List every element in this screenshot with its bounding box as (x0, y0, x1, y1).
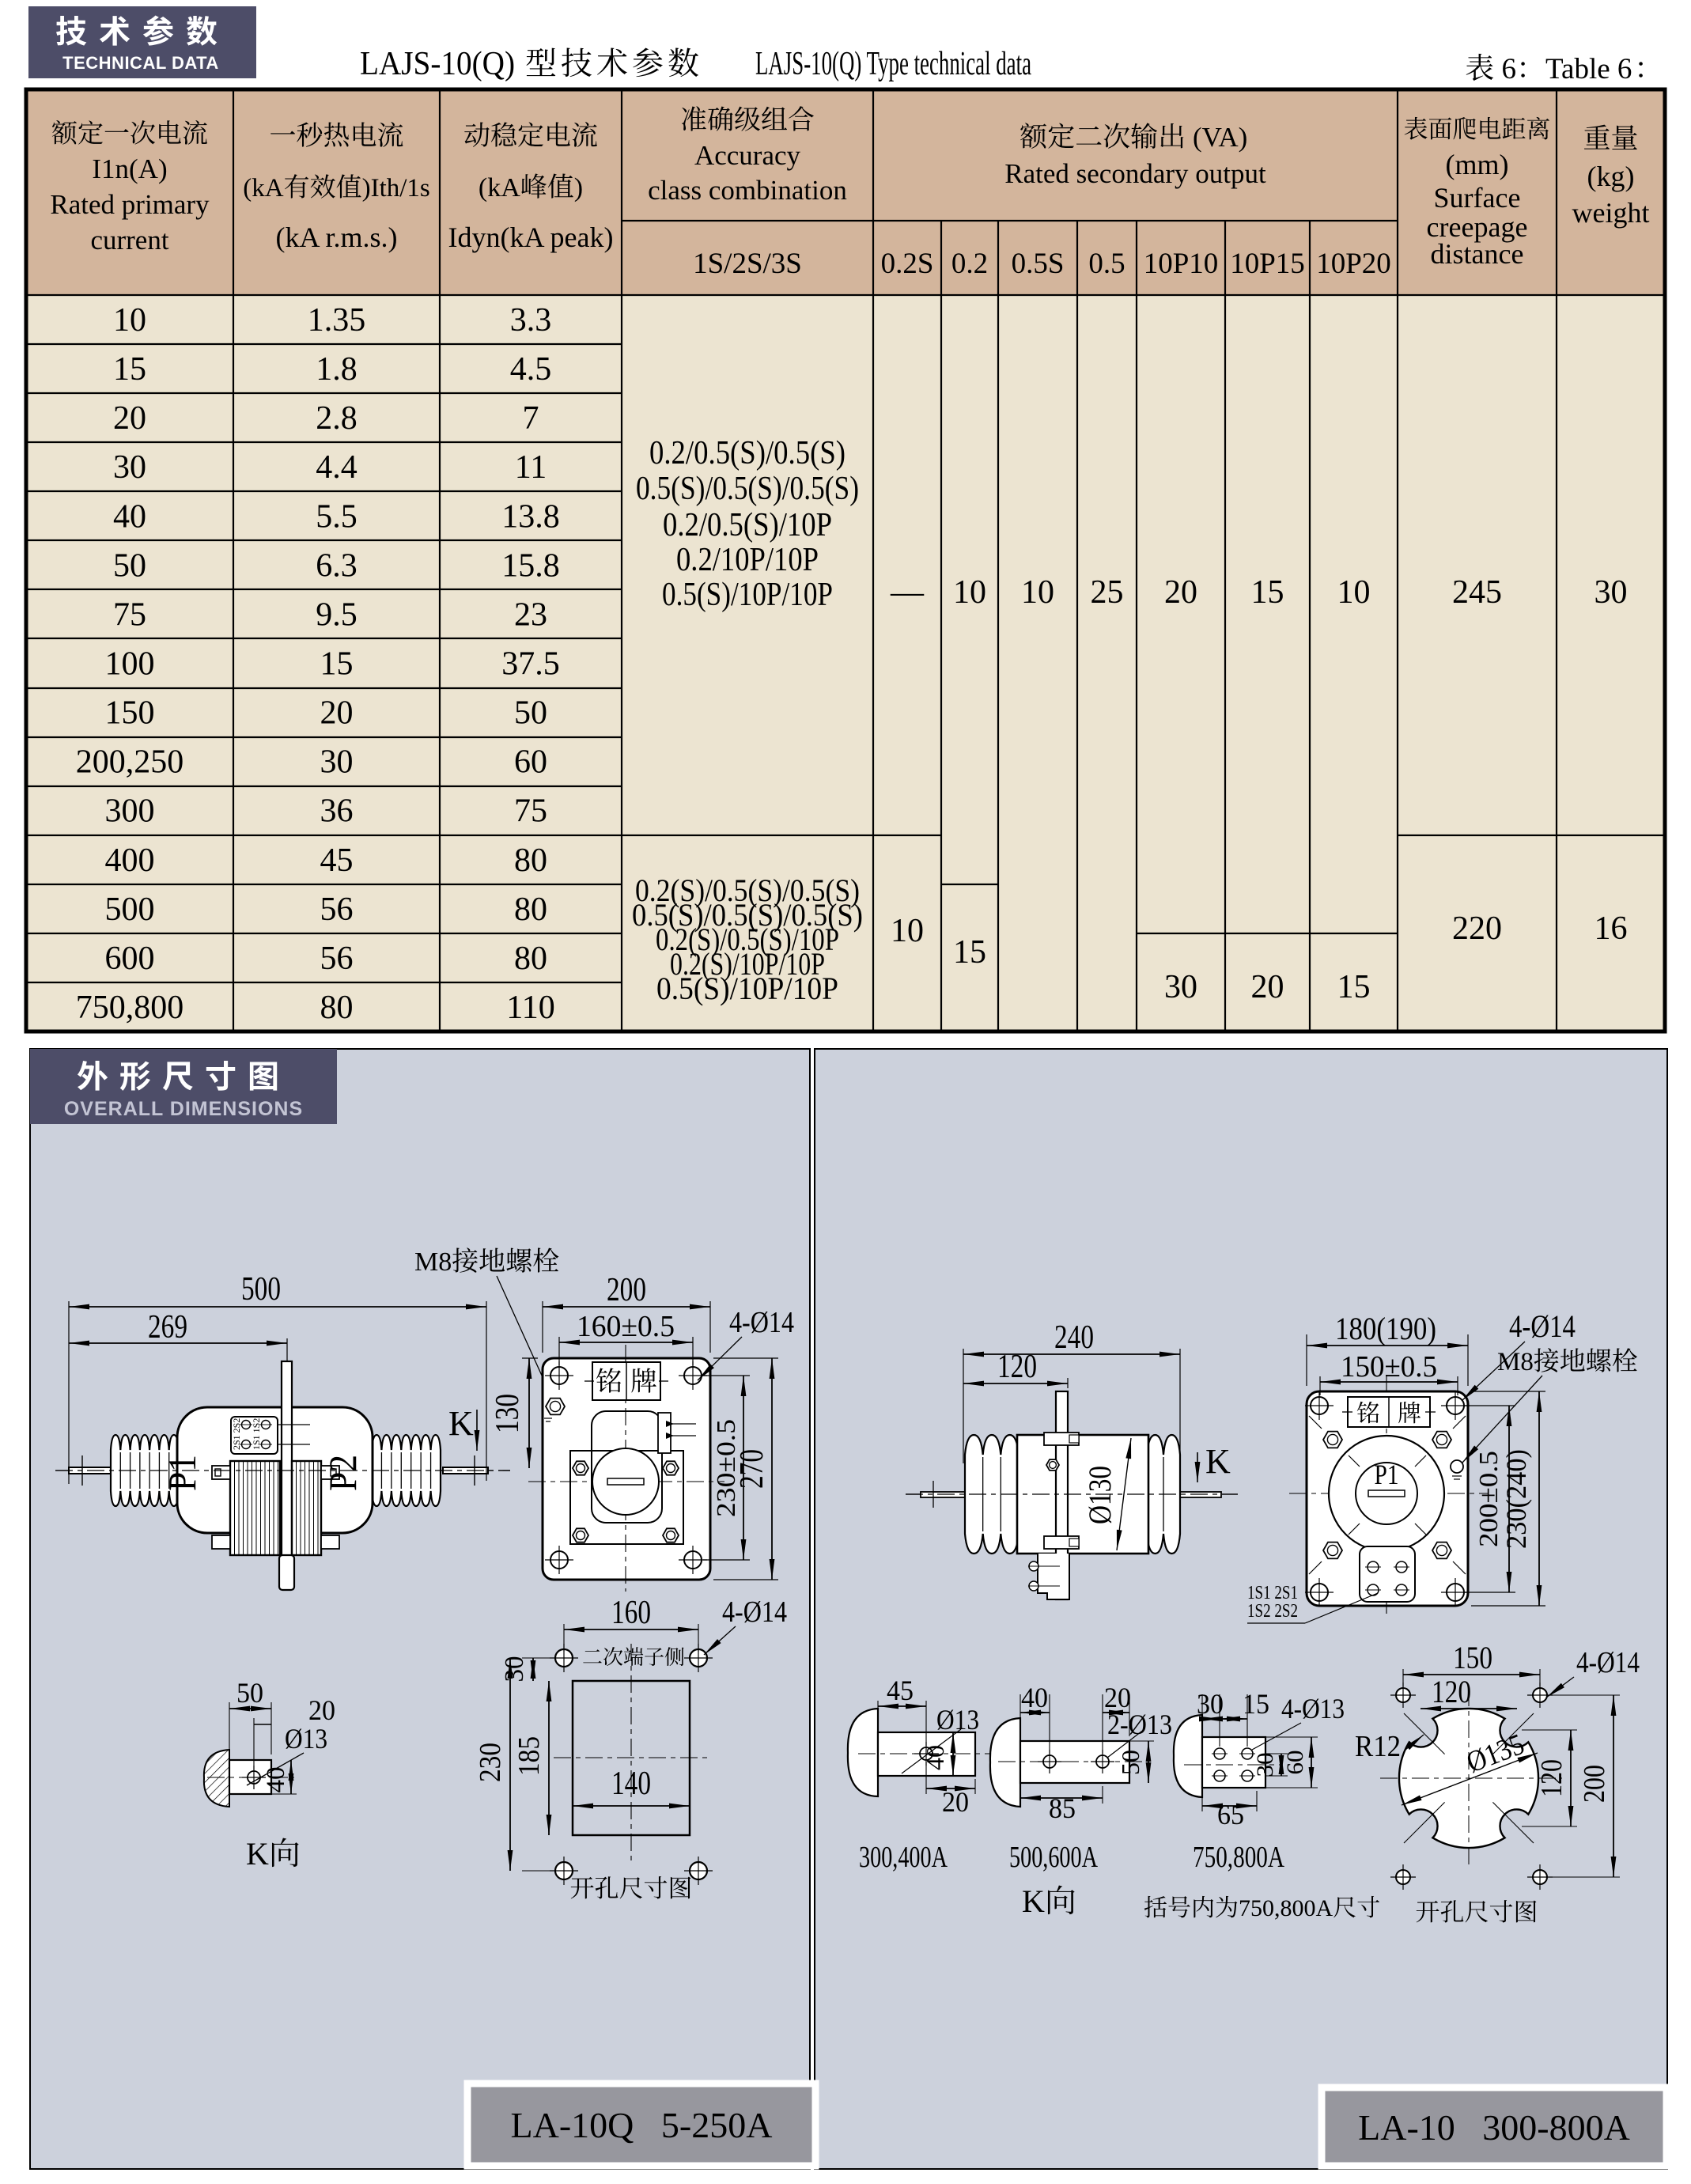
svg-text:500: 500 (105, 891, 155, 928)
svg-text:1S1 1S2: 1S1 1S2 (251, 1418, 262, 1450)
svg-text:0.5(S)/0.5(S)/0.5(S): 0.5(S)/0.5(S)/0.5(S) (636, 471, 859, 507)
svg-text:6: 6 (1494, 53, 1516, 85)
svg-text:0.2S: 0.2S (881, 248, 934, 280)
svg-text:80: 80 (514, 941, 547, 977)
svg-text:500,600A: 500,600A (1009, 1841, 1098, 1874)
svg-text:37.5: 37.5 (501, 646, 560, 683)
svg-text:0.2/0.5(S)/10P: 0.2/0.5(S)/10P (663, 507, 832, 543)
svg-text:0.2/0.5(S)/0.5(S): 0.2/0.5(S)/0.5(S) (649, 435, 845, 471)
svg-text:10: 10 (113, 302, 146, 339)
svg-text:0.5: 0.5 (1088, 248, 1125, 280)
svg-text:): ) (574, 173, 583, 203)
svg-text:300,400A: 300,400A (859, 1841, 948, 1874)
svg-text:7: 7 (523, 400, 539, 437)
svg-text:1.8: 1.8 (316, 351, 357, 388)
svg-text:10P20: 10P20 (1316, 248, 1391, 280)
svg-text:23: 23 (514, 596, 547, 633)
svg-text:56: 56 (320, 891, 354, 928)
svg-text:(kA: (kA (243, 174, 283, 203)
svg-text:15: 15 (113, 351, 146, 388)
svg-text:I1n(A): I1n(A) (92, 153, 167, 184)
svg-text:1S2 2S2: 1S2 2S2 (1247, 1601, 1298, 1622)
svg-text:M8: M8 (1497, 1348, 1534, 1376)
svg-text:R12: R12 (1355, 1730, 1401, 1763)
svg-text:80: 80 (320, 990, 354, 1026)
svg-text:Accuracy: Accuracy (694, 140, 801, 171)
svg-text:230: 230 (474, 1743, 507, 1782)
svg-text:245: 245 (1452, 574, 1502, 611)
svg-text:45: 45 (320, 842, 354, 879)
svg-text:—: — (890, 574, 925, 611)
svg-text:65: 65 (1217, 1799, 1244, 1830)
svg-text:current: current (90, 225, 168, 255)
svg-text:Surface: Surface (1434, 182, 1521, 214)
svg-text:0.5S: 0.5S (1012, 248, 1065, 280)
svg-text:750,800A: 750,800A (1239, 1895, 1334, 1921)
svg-text:9.5: 9.5 (316, 596, 357, 633)
svg-text:2S1 2S2: 2S1 2S2 (231, 1418, 242, 1450)
svg-text:Ø13: Ø13 (285, 1723, 327, 1754)
svg-text:400: 400 (105, 842, 155, 879)
svg-text:TECHNICAL DATA: TECHNICAL DATA (62, 53, 219, 73)
svg-text:10: 10 (891, 913, 924, 949)
svg-text:50: 50 (113, 547, 146, 584)
svg-text:4.5: 4.5 (510, 351, 552, 388)
svg-text:30: 30 (500, 1656, 529, 1682)
svg-text:200: 200 (1578, 1765, 1611, 1803)
svg-text:(VA): (VA) (1186, 122, 1247, 153)
svg-text:(kA r.m.s.): (kA r.m.s.) (275, 221, 397, 253)
svg-text:2.8: 2.8 (316, 400, 357, 437)
svg-text:50: 50 (236, 1677, 263, 1709)
svg-text:20: 20 (1251, 969, 1284, 1005)
svg-text:P1: P1 (160, 1455, 204, 1491)
svg-text:LA-10 300-800A: LA-10 300-800A (1358, 2107, 1630, 2148)
svg-text:11: 11 (515, 449, 547, 486)
svg-text:36: 36 (320, 793, 354, 830)
svg-text:Rated primary: Rated primary (50, 189, 210, 220)
svg-text:300: 300 (105, 793, 155, 830)
svg-text:60: 60 (1282, 1751, 1308, 1775)
svg-text:4-Ø13: 4-Ø13 (1281, 1693, 1345, 1724)
svg-text:220: 220 (1452, 910, 1502, 947)
svg-text:Rated secondary output: Rated secondary output (1004, 158, 1266, 189)
svg-text:270: 270 (734, 1449, 770, 1489)
svg-text:160: 160 (611, 1595, 651, 1631)
svg-text:Table 6: Table 6 (1545, 53, 1632, 85)
svg-text:30: 30 (1164, 969, 1197, 1005)
svg-text:LAJS-10(Q) Type technical data: LAJS-10(Q) Type technical data (755, 46, 1031, 82)
svg-text:15: 15 (1251, 574, 1284, 611)
svg-text:Idyn(kA peak): Idyn(kA peak) (448, 221, 614, 253)
svg-text:class combination: class combination (648, 175, 847, 206)
svg-text:3.3: 3.3 (510, 302, 552, 339)
svg-text:4-Ø14: 4-Ø14 (1509, 1308, 1576, 1344)
svg-text:LA-10Q 5-250A: LA-10Q 5-250A (511, 2105, 773, 2145)
svg-text:56: 56 (320, 941, 354, 977)
svg-text:120: 120 (1432, 1674, 1471, 1709)
svg-text:120: 120 (997, 1349, 1037, 1385)
svg-text:4-Ø14: 4-Ø14 (722, 1595, 787, 1629)
svg-text:P1: P1 (1375, 1459, 1399, 1490)
svg-text:30: 30 (1197, 1688, 1224, 1720)
svg-text:200,250: 200,250 (76, 744, 184, 781)
svg-text:Ø13: Ø13 (936, 1704, 979, 1735)
svg-text:1S/2S/3S: 1S/2S/3S (693, 248, 802, 280)
svg-text:120: 120 (1535, 1759, 1568, 1797)
svg-text:1.35: 1.35 (308, 302, 366, 339)
svg-text:40: 40 (921, 1745, 949, 1770)
svg-text:)Ith/1s: )Ith/1s (362, 174, 430, 203)
svg-text:20: 20 (1164, 574, 1197, 611)
svg-text:45: 45 (887, 1675, 914, 1706)
svg-text:500: 500 (241, 1271, 281, 1308)
svg-text:25: 25 (1091, 574, 1124, 611)
svg-text:K: K (1205, 1442, 1231, 1481)
svg-text:(mm): (mm) (1446, 149, 1509, 180)
svg-text:10P15: 10P15 (1230, 248, 1305, 280)
svg-text:6.3: 6.3 (316, 547, 357, 584)
svg-text:15: 15 (1243, 1688, 1269, 1720)
svg-text:240: 240 (1054, 1319, 1094, 1356)
svg-text:10: 10 (1337, 574, 1371, 611)
svg-text:75: 75 (514, 793, 547, 830)
svg-text:750,800A: 750,800A (1193, 1841, 1284, 1874)
svg-text:10: 10 (1021, 574, 1054, 611)
svg-text:600: 600 (105, 941, 155, 977)
svg-text:4-Ø14: 4-Ø14 (729, 1306, 794, 1339)
svg-text:30: 30 (113, 449, 146, 486)
svg-text:150: 150 (1453, 1640, 1492, 1675)
svg-text:(kA: (kA (479, 173, 520, 203)
svg-text:30: 30 (1595, 574, 1628, 611)
svg-text:130: 130 (490, 1394, 526, 1433)
svg-text:distance: distance (1431, 238, 1524, 270)
svg-text:80: 80 (514, 842, 547, 879)
svg-text:4.4: 4.4 (316, 449, 357, 486)
svg-text:0.2/10P/10P: 0.2/10P/10P (676, 542, 819, 578)
svg-text:20: 20 (308, 1694, 335, 1726)
svg-text:P2: P2 (320, 1455, 365, 1491)
svg-text:30: 30 (320, 744, 354, 781)
svg-text:230(240): 230(240) (1500, 1449, 1532, 1549)
svg-text:(kg): (kg) (1587, 161, 1635, 192)
svg-text:0.2: 0.2 (951, 248, 988, 280)
svg-text:M8: M8 (414, 1247, 452, 1277)
svg-text:100: 100 (105, 646, 155, 683)
svg-text:K: K (448, 1404, 474, 1443)
svg-text:750,800: 750,800 (76, 990, 184, 1026)
svg-text:2-Ø13: 2-Ø13 (1107, 1709, 1172, 1740)
svg-text:40: 40 (113, 498, 146, 535)
svg-text:20: 20 (942, 1786, 969, 1818)
svg-text:160±0.5: 160±0.5 (577, 1310, 675, 1343)
svg-text:40: 40 (262, 1767, 290, 1793)
svg-text:150±0.5: 150±0.5 (1341, 1350, 1437, 1383)
svg-text:80: 80 (514, 891, 547, 928)
svg-text:20: 20 (113, 400, 146, 437)
svg-text:50: 50 (1116, 1750, 1144, 1775)
svg-text:K: K (1022, 1883, 1045, 1919)
svg-text:Ø130: Ø130 (1082, 1466, 1118, 1524)
svg-text:5.5: 5.5 (316, 498, 357, 535)
svg-text:50: 50 (514, 695, 547, 732)
svg-text:4-Ø14: 4-Ø14 (1576, 1646, 1640, 1679)
svg-text:0.5(S)/10P/10P: 0.5(S)/10P/10P (662, 577, 833, 613)
svg-text:K: K (246, 1836, 269, 1872)
svg-text:10: 10 (953, 574, 986, 611)
svg-text:200: 200 (607, 1272, 646, 1308)
svg-text:40: 40 (1021, 1682, 1048, 1713)
svg-text:75: 75 (113, 596, 146, 633)
svg-text:0.5(S)/10P/10P: 0.5(S)/10P/10P (656, 971, 838, 1006)
svg-text:LAJS-10(Q): LAJS-10(Q) (360, 46, 515, 82)
svg-text:60: 60 (514, 744, 547, 781)
svg-text:weight: weight (1572, 197, 1650, 229)
svg-text:30: 30 (1252, 1753, 1278, 1777)
svg-text:16: 16 (1595, 910, 1628, 947)
svg-text:180(190): 180(190) (1335, 1311, 1436, 1346)
svg-text:269: 269 (148, 1309, 187, 1346)
svg-text:OVERALL DIMENSIONS: OVERALL DIMENSIONS (64, 1098, 303, 1120)
svg-text:15: 15 (953, 934, 986, 971)
svg-text:20: 20 (320, 695, 354, 732)
svg-text:110: 110 (506, 990, 554, 1026)
svg-text:15: 15 (1337, 969, 1371, 1005)
svg-text:150: 150 (105, 695, 155, 732)
svg-text:85: 85 (1049, 1792, 1076, 1824)
svg-text:10P10: 10P10 (1144, 248, 1219, 280)
svg-text:140: 140 (611, 1766, 651, 1802)
svg-text:13.8: 13.8 (501, 498, 560, 535)
svg-text:185: 185 (513, 1736, 546, 1776)
svg-text:200±0.5: 200±0.5 (1474, 1451, 1504, 1547)
svg-text:15.8: 15.8 (501, 547, 560, 584)
svg-text:15: 15 (320, 646, 354, 683)
